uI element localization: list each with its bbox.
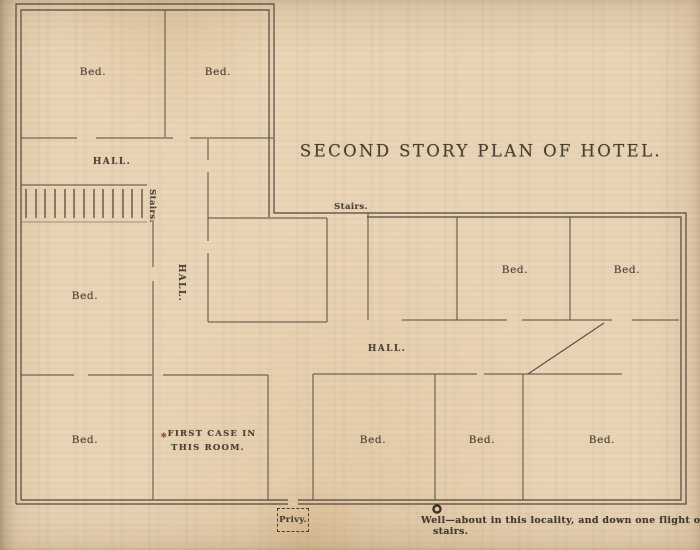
stairs-left-label: Stairs.: [147, 189, 157, 223]
outer-walls: [16, 4, 686, 504]
room-label-bed-top-mid: Bed.: [205, 66, 231, 78]
stairs-right-label: Stairs.: [334, 202, 368, 212]
diagonal-partition-line: [528, 323, 604, 374]
room-label-bed-right-bottom-3: Bed.: [589, 434, 615, 446]
privy-outline: Privy.: [277, 508, 309, 532]
room-label-bed-right-top-2: Bed.: [502, 264, 528, 276]
well-note-line2: stairs.: [433, 526, 468, 537]
room-label-bed-right-top-3: Bed.: [614, 264, 640, 276]
room-label-hall-upper: HALL.: [93, 157, 131, 167]
well-note-line1: Well—about in this locality, and down on…: [421, 515, 700, 526]
scanned-plan-page: SECOND STORY PLAN OF HOTEL. Bed. Bed. HA…: [0, 0, 700, 550]
well-symbol: [434, 506, 441, 513]
interior-walls: [21, 10, 679, 500]
first-case-marker: *: [161, 431, 167, 444]
room-label-bed-right-bottom-1: Bed.: [360, 434, 386, 446]
room-label-bed-mid-left: Bed.: [72, 290, 98, 302]
room-label-bed-top-left: Bed.: [80, 66, 106, 78]
room-label-hall-vertical: HALL.: [176, 264, 186, 302]
room-label-bed-right-bottom-2: Bed.: [469, 434, 495, 446]
first-case-label-line2: THIS ROOM.: [171, 443, 245, 453]
plan-title: SECOND STORY PLAN OF HOTEL.: [300, 142, 662, 161]
privy-label: Privy.: [279, 515, 307, 525]
room-label-hall-right: HALL.: [368, 344, 406, 354]
first-case-label-line1: FIRST CASE IN: [168, 429, 257, 439]
floor-plan-drawing: [0, 0, 700, 550]
stairs-left-treads: [21, 185, 147, 222]
room-label-bed-bottom-left: Bed.: [72, 434, 98, 446]
